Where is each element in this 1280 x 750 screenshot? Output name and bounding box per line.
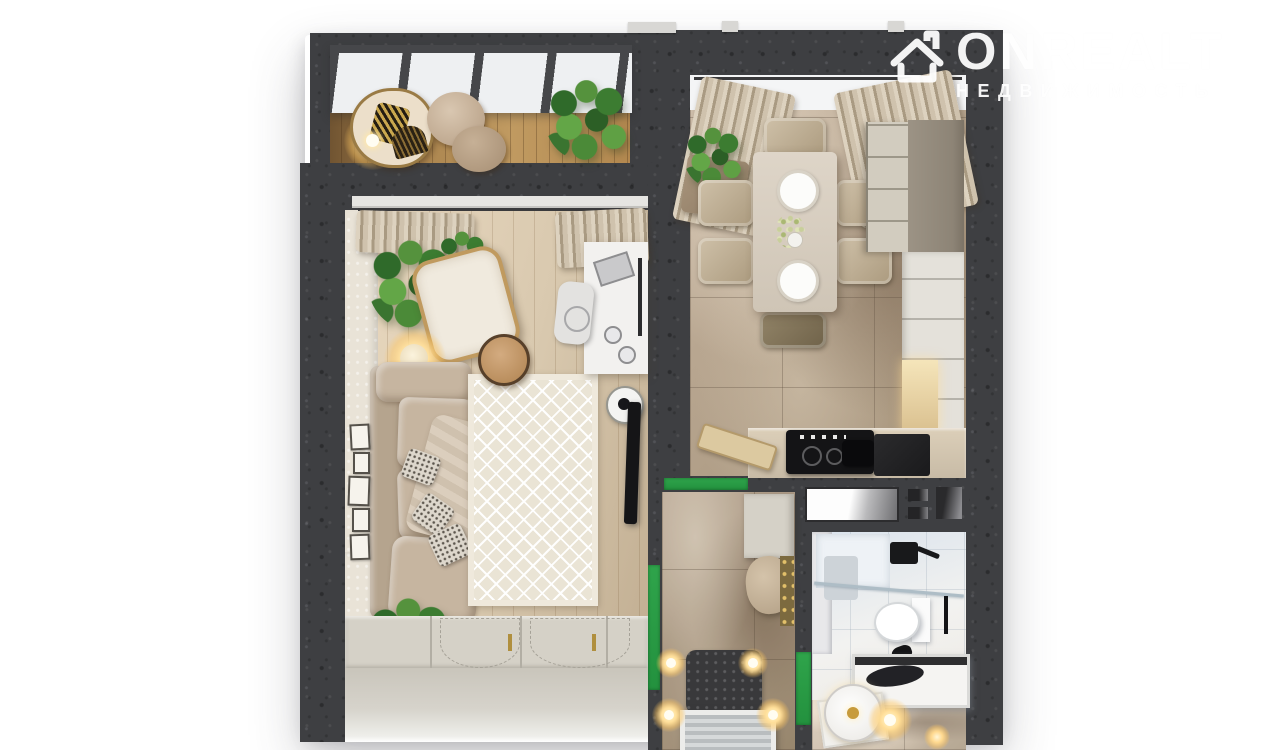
picture-frame [347,476,370,507]
wall-cap [628,22,676,33]
burner [826,448,843,465]
sofa-arm-top [376,362,472,402]
balcony-lounge-chair [350,88,434,168]
wall-cap [722,21,738,32]
cooktop-controls [800,435,846,439]
coffee-table [478,334,530,386]
bath-mat-gray [824,556,858,600]
dining-chair [698,180,754,226]
door-marker-kitchen-hallway [664,478,748,490]
dining-table [753,152,837,312]
picture-frame [350,534,371,561]
vanity-bulb-glow [924,724,950,750]
wall-niche-wide [805,487,899,522]
vase [787,232,803,248]
burner [802,446,822,466]
wardrobe-handle [592,634,596,651]
floorplan-render: ONREALT НЕДВИЖИМОСТЬ [0,0,1280,750]
mirror-light [847,707,859,719]
living-rug [468,374,598,606]
desk-lamp-bar [638,258,642,336]
wall-left-outer [300,163,345,742]
kitchen-tall-cabinet [908,120,964,252]
picture-frame [353,452,370,474]
wall-niche-small [908,507,928,519]
pot [842,440,874,466]
brand-name: ONREALT [956,24,1224,80]
door-swing-arc [530,618,630,668]
kitchen-plant [684,126,744,188]
brand-tagline: НЕДВИЖИМОСТЬ [956,81,1224,102]
plate [777,260,819,302]
shower-head [890,542,918,564]
vanity-bulb [884,714,896,726]
dining-chair [698,238,754,284]
coat-hooks-panel [780,556,794,626]
balcony-pouf [452,126,506,172]
door-marker-hallway-bathroom [796,652,811,725]
hallway-cabinet [744,494,794,558]
kitchen-sink-dark [874,434,930,476]
laptop [593,251,635,287]
picture-frame [352,508,370,532]
desk [584,242,648,374]
kitchen-cabinet-fronts [866,122,910,252]
dining-chair-dark [760,312,826,348]
desk-cup [618,346,636,364]
watermark: ONREALT НЕДВИЖИМОСТЬ [888,24,1224,102]
plate [777,170,819,212]
wall-niche-square [936,487,962,519]
wall-niche-small [908,489,928,501]
desk-cup [604,326,622,344]
wall-right-outer [966,30,1003,745]
balcony-plant [545,78,631,162]
towel-bar [944,596,948,634]
kitchen-lit-backsplash [902,360,938,434]
wardrobe-top [345,616,648,670]
picture-frame [349,423,370,450]
desk-chair-base [564,306,590,332]
house-icon [888,28,946,91]
wardrobe-handle [508,634,512,651]
living-window-sill [352,196,648,208]
wall-balcony-left [310,33,330,165]
wardrobe-front [345,668,648,742]
floor-lamp-bulb [366,134,379,147]
